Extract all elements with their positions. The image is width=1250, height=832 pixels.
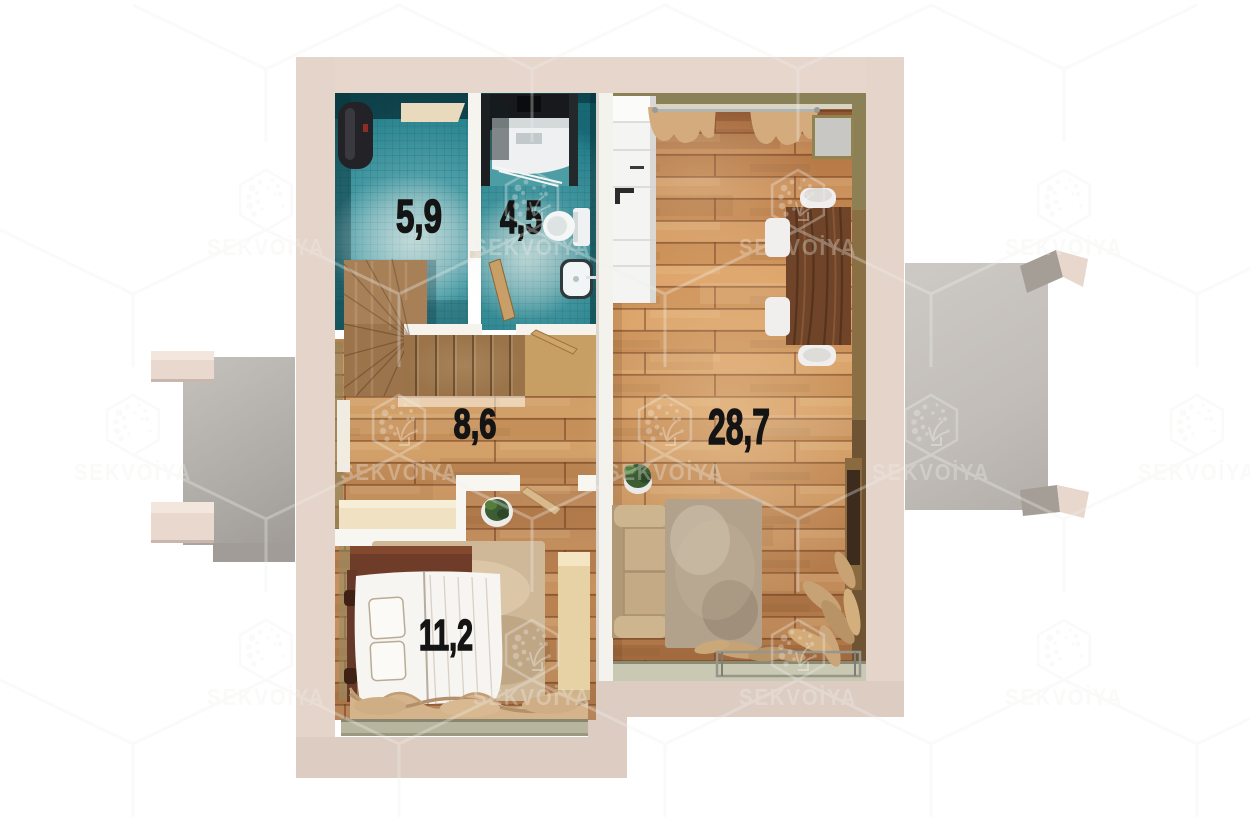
svg-text:8,6: 8,6 <box>454 400 497 447</box>
svg-text:5,9: 5,9 <box>396 190 442 242</box>
svg-text:11,2: 11,2 <box>419 611 473 660</box>
svg-text:28,7: 28,7 <box>708 399 770 455</box>
